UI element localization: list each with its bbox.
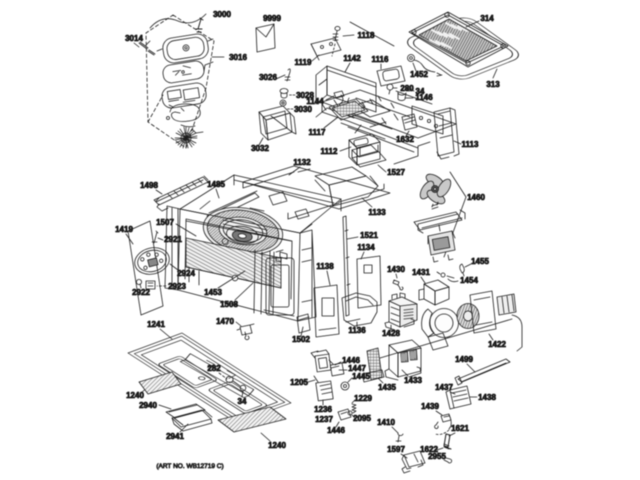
svg-text:1113: 1113 <box>462 140 479 149</box>
svg-text:1229: 1229 <box>354 394 372 403</box>
svg-text:1237: 1237 <box>315 415 333 424</box>
svg-text:1119: 1119 <box>295 58 312 67</box>
svg-text:1521: 1521 <box>360 231 378 240</box>
svg-text:1116: 1116 <box>372 55 389 64</box>
svg-text:1632: 1632 <box>396 135 414 144</box>
svg-text:1507: 1507 <box>156 218 174 227</box>
svg-text:1142: 1142 <box>343 54 361 63</box>
svg-text:9999: 9999 <box>263 14 281 23</box>
svg-text:1410: 1410 <box>377 418 395 427</box>
svg-text:1435: 1435 <box>378 383 396 392</box>
svg-text:2941: 2941 <box>166 432 184 441</box>
svg-text:2924: 2924 <box>177 269 195 278</box>
svg-text:1438: 1438 <box>478 393 496 402</box>
svg-text:1499: 1499 <box>455 355 473 364</box>
svg-text:1146: 1146 <box>415 93 433 102</box>
svg-text:(ART NO. WB12719 C): (ART NO. WB12719 C) <box>156 463 223 470</box>
svg-text:1446: 1446 <box>327 426 345 435</box>
svg-text:1240: 1240 <box>126 391 144 400</box>
svg-text:1132: 1132 <box>293 158 311 167</box>
svg-text:3030: 3030 <box>294 105 312 114</box>
svg-text:1134: 1134 <box>357 243 375 252</box>
svg-text:1597: 1597 <box>387 445 405 454</box>
svg-text:313: 313 <box>486 80 500 89</box>
svg-text:1205: 1205 <box>290 378 308 387</box>
svg-text:1241: 1241 <box>147 320 165 329</box>
svg-text:314: 314 <box>480 14 494 23</box>
svg-text:1144: 1144 <box>306 97 324 106</box>
svg-text:3026: 3026 <box>259 73 277 82</box>
svg-text:34: 34 <box>238 397 247 406</box>
svg-text:1117: 1117 <box>309 128 326 137</box>
svg-text:1428: 1428 <box>382 329 400 338</box>
svg-text:3032: 3032 <box>251 144 269 153</box>
svg-text:1460: 1460 <box>467 193 485 202</box>
svg-text:1422: 1422 <box>488 340 506 349</box>
svg-text:1112: 1112 <box>321 147 338 156</box>
svg-text:2923: 2923 <box>168 282 186 291</box>
svg-text:1240: 1240 <box>268 441 286 450</box>
svg-text:1433: 1433 <box>404 376 422 385</box>
svg-text:1455: 1455 <box>471 257 489 266</box>
svg-text:1508: 1508 <box>220 300 238 309</box>
svg-text:2095: 2095 <box>353 414 371 423</box>
svg-text:1453: 1453 <box>204 288 222 297</box>
svg-text:3000: 3000 <box>213 10 231 19</box>
svg-text:1470: 1470 <box>216 317 234 326</box>
svg-text:3014: 3014 <box>125 34 143 43</box>
svg-text:1431: 1431 <box>412 268 430 277</box>
svg-text:1430: 1430 <box>387 265 405 274</box>
svg-text:1439: 1439 <box>421 402 439 411</box>
svg-text:1236: 1236 <box>314 405 332 414</box>
svg-text:1118: 1118 <box>358 31 375 40</box>
svg-text:1445: 1445 <box>352 372 370 381</box>
svg-text:1437: 1437 <box>435 383 453 392</box>
svg-text:1136: 1136 <box>348 326 366 335</box>
svg-text:2955: 2955 <box>428 452 446 461</box>
svg-text:1452: 1452 <box>410 70 428 79</box>
svg-text:3016: 3016 <box>229 53 247 62</box>
svg-text:1138: 1138 <box>316 262 334 271</box>
svg-text:1502: 1502 <box>292 335 310 344</box>
svg-text:1498: 1498 <box>140 181 158 190</box>
svg-text:282: 282 <box>207 364 221 373</box>
svg-text:1527: 1527 <box>387 168 405 177</box>
svg-text:1485: 1485 <box>207 180 225 189</box>
svg-text:1454: 1454 <box>460 276 478 285</box>
svg-text:1133: 1133 <box>368 208 386 217</box>
svg-text:1621: 1621 <box>451 424 469 433</box>
svg-text:2940: 2940 <box>139 401 157 410</box>
svg-text:2921: 2921 <box>164 235 182 244</box>
